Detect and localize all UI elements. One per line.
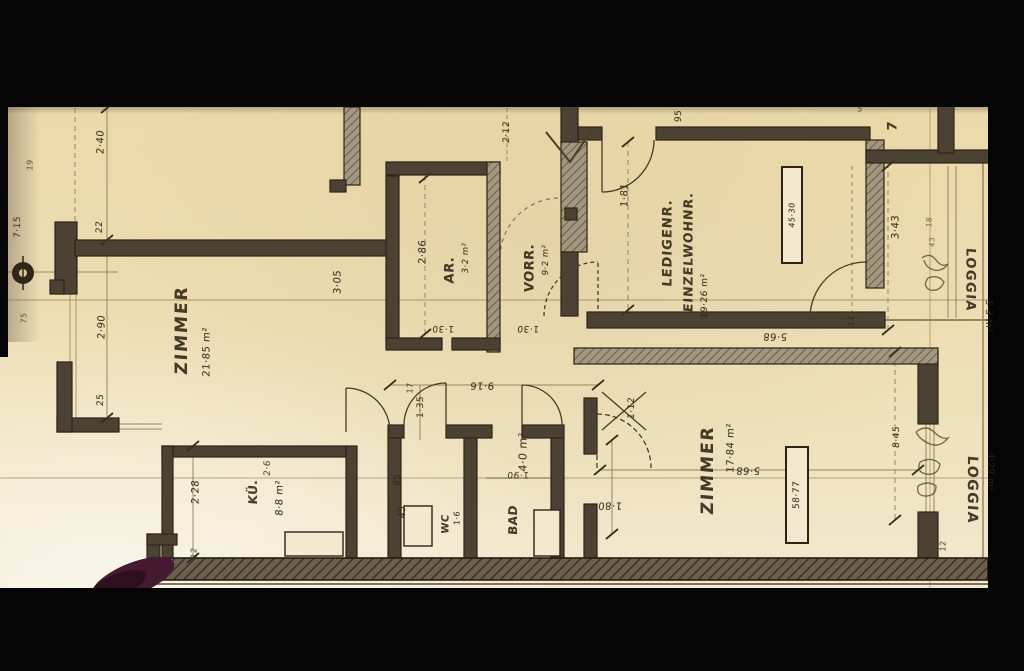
dim-95-top: 95 [674, 109, 684, 122]
dim-8-45: 8·45 [892, 426, 902, 449]
room-label-zimmer-upper: ZIMMER [172, 285, 192, 376]
dim-7-15: 7·15 [13, 216, 23, 239]
dim-1-35: 1·35 [416, 396, 426, 419]
dim-22: 22 [95, 220, 105, 233]
room-label-abstellraum: AR. [443, 256, 458, 284]
dim-1-90: 1·90 [507, 469, 530, 479]
dim-2-90: 2·90 [97, 314, 108, 339]
dim-5-68-lower: 5·68 [735, 465, 760, 476]
dim-17: 17 [406, 382, 415, 394]
dim-12-loggia-upper: 12 [847, 315, 856, 327]
dim-2-28: 2·28 [191, 479, 202, 504]
photo-black-border-right [988, 0, 1024, 671]
cabinet-upper-label: 45·30 [788, 202, 797, 228]
dim-5: 5 [857, 105, 863, 114]
room-label-loggia-upper: LOGGIA [963, 247, 978, 312]
dim-75: 75 [20, 312, 29, 324]
outer-wall-hatched [150, 558, 988, 584]
room-label-bad: BAD [506, 504, 520, 535]
cross-out-mark [602, 392, 646, 430]
dim-1-30-left: 1·30 [432, 323, 455, 333]
dim-3-05: 3·05 [333, 269, 344, 294]
dim-1-81: 1·81 [620, 182, 631, 207]
dim-2-86: 2·86 [418, 239, 429, 264]
dim-45: 45 [398, 505, 408, 518]
room-label-ledigenraum: LEDIGENR. [661, 199, 676, 288]
room-dim-kueche: 2·6 [263, 460, 273, 477]
dim-12-kueche: 12 [190, 547, 199, 559]
dim-7: 7 [886, 121, 901, 132]
dim-43-faint: 43 [928, 236, 937, 247]
room-label-einzelwohnraum: EINZELWOHNR. [681, 191, 696, 313]
room-label-kueche: KÜ. [246, 479, 260, 505]
room-area-vorraum: 9·2 m² [541, 244, 551, 276]
dim-18-faint: 18 [925, 216, 934, 227]
room-label-vorraum: VORR. [523, 243, 538, 293]
dim-5-68-upper: 5·68 [762, 331, 787, 342]
dim-12-loggia-lower: 12 [939, 540, 948, 552]
room-label-loggia-lower: LOGGIA [964, 455, 980, 525]
room-area-bad: 4·0 m² [517, 432, 530, 472]
room-area-wc: 1·6 [453, 510, 462, 525]
cabinet-lower-label: 58·77 [792, 480, 802, 509]
dim-95-wc: 95 [393, 473, 403, 486]
photo-black-border-left [0, 107, 8, 357]
room-label-wc: WC [441, 514, 452, 534]
dim-19: 19 [26, 159, 35, 171]
dim-2-40: 2·40 [96, 129, 107, 154]
room-area-loggia-lower: 4·29 m² [985, 452, 995, 492]
room-area-abstellraum: 3·2 m² [461, 242, 471, 274]
photo-black-border-top [0, 0, 1024, 107]
dim-1-80: 1·80 [597, 500, 622, 511]
room-area-zimmer-upper: 21·85 m² [202, 327, 213, 378]
dim-3-43: 3·43 [891, 214, 902, 239]
room-label-zimmer-lower: ZIMMER [698, 425, 718, 516]
photo-black-border-bottom [0, 588, 1024, 671]
dim-1-30-right: 1·30 [517, 323, 540, 333]
dim-2-12: 2·12 [502, 121, 512, 144]
room-area-zimmer-lower: 17·84 m² [726, 423, 737, 474]
room-area-kueche: 8·8 m² [275, 480, 286, 517]
room-area-loggia-upper: 5·3 m² [983, 299, 993, 332]
room-area-einzelwohnraum: 19·26 m² [700, 273, 710, 319]
screenshot-canvas: ZIMMER 21·85 m² AR. 3·2 m² VORR. 9·2 m² … [0, 0, 1024, 671]
benchmark-symbol [12, 256, 34, 290]
dim-1-12: 1·12 [627, 397, 637, 420]
dim-25: 25 [96, 393, 106, 406]
dim-9-16: 9·16 [469, 380, 494, 391]
